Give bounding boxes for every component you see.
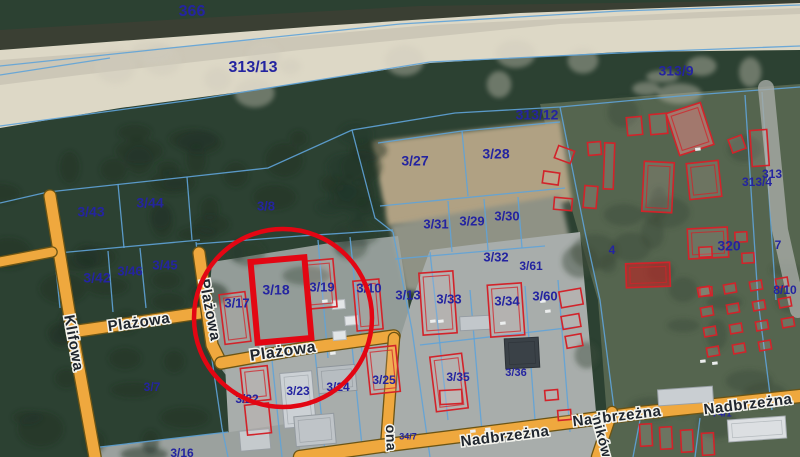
building-outline-red xyxy=(680,430,693,453)
car xyxy=(500,321,506,325)
building-outline-red xyxy=(752,300,765,311)
building-outline-red xyxy=(559,288,583,308)
car xyxy=(322,299,328,303)
building-outline-red xyxy=(755,320,768,331)
building-outline-red xyxy=(642,161,675,213)
texture-blob xyxy=(18,411,63,446)
texture-blob xyxy=(496,40,536,68)
building-roof xyxy=(460,315,491,331)
texture-blob xyxy=(290,131,307,146)
building-outline-red xyxy=(723,283,736,294)
parcel-label: 3/8 xyxy=(257,198,275,213)
texture-blob xyxy=(385,45,424,76)
parcel-label: 320 xyxy=(717,238,741,254)
texture-blob xyxy=(739,57,761,87)
parcel-label: 3/60 xyxy=(532,288,557,303)
building-outline-red xyxy=(649,113,668,134)
building-outline-red xyxy=(686,160,722,199)
parcel-label: 3/34 xyxy=(494,293,520,308)
texture-blob xyxy=(204,68,231,92)
parcel-label: 3/42 xyxy=(83,270,110,286)
building-outline-red xyxy=(440,389,463,404)
car xyxy=(695,147,701,151)
building-outline-red xyxy=(778,297,791,308)
parcel-label: 3/44 xyxy=(136,195,163,211)
building-outline-red xyxy=(561,314,581,330)
parcel-label: 3/43 xyxy=(77,204,104,220)
texture-blob xyxy=(487,71,512,98)
building-outline-red xyxy=(732,343,745,354)
parcel-label: 3/16 xyxy=(170,446,194,457)
texture-blob xyxy=(101,159,127,182)
parcel-label: 313/12 xyxy=(516,107,559,123)
building-outline-red xyxy=(781,317,794,328)
building-outline-red xyxy=(542,171,560,185)
texture-blob xyxy=(657,83,701,104)
building-outline-red xyxy=(487,283,525,337)
building-outline-red xyxy=(545,389,559,400)
parcel-label: 3/28 xyxy=(482,146,509,162)
parcel-label: 3/30 xyxy=(494,208,519,223)
texture-blob xyxy=(152,293,184,310)
parcel-label: 7 xyxy=(775,238,782,252)
texture-blob xyxy=(632,82,660,96)
parcel-label: 4 xyxy=(609,243,616,257)
building-outline-red xyxy=(639,424,652,447)
parcel-label: 3/45 xyxy=(152,257,177,272)
texture-blob xyxy=(604,204,644,226)
texture-blob xyxy=(125,146,152,173)
parcel-label: 3/13 xyxy=(395,287,420,302)
car xyxy=(712,361,718,365)
parcel-label: 3/17 xyxy=(224,295,249,310)
parcel-label: 3/61 xyxy=(519,259,543,273)
building-outline-red xyxy=(583,185,598,208)
texture-blob xyxy=(161,407,209,427)
map-render-layer: 366313/13313/9313/123/273/283/83/433/443… xyxy=(0,0,800,457)
texture-blob xyxy=(60,152,79,183)
car xyxy=(545,309,551,313)
building-outline-red xyxy=(700,306,713,317)
texture-blob xyxy=(667,319,699,332)
building-outline-red xyxy=(706,346,719,357)
parcel-label: 3/18 xyxy=(262,282,289,298)
texture-blob xyxy=(201,198,219,222)
parcel-label: 3/25 xyxy=(372,373,396,387)
texture-blob xyxy=(153,272,180,289)
car xyxy=(700,359,706,363)
building-outline-red xyxy=(697,286,710,297)
building-outline-red xyxy=(750,129,769,166)
parcel-label: 8/10 xyxy=(773,283,797,297)
parcel-label: 3/46 xyxy=(117,263,142,278)
parcel-label: 366 xyxy=(179,3,206,20)
building-outline-red xyxy=(701,433,714,456)
building-outline-red xyxy=(626,262,671,288)
car xyxy=(438,319,444,323)
texture-blob xyxy=(164,351,184,373)
building-outline-red xyxy=(603,143,615,189)
parcel-label: 34/7 xyxy=(399,431,417,441)
building-outline-red xyxy=(758,340,771,351)
texture-blob xyxy=(169,129,216,149)
parcel-line xyxy=(58,240,200,253)
parcel-label: 3/23 xyxy=(286,384,310,398)
texture-blob xyxy=(568,48,599,74)
parcel-label: 3/7 xyxy=(144,380,161,394)
building-roof xyxy=(333,330,347,340)
car xyxy=(330,351,336,355)
parcel-label: 3/29 xyxy=(459,213,484,228)
texture-blob xyxy=(224,163,248,187)
building-outline-red xyxy=(554,197,573,211)
parcel-label: 3/36 xyxy=(505,367,526,379)
building-outline-red xyxy=(742,253,755,264)
parcel-label: 3/19 xyxy=(309,279,334,294)
building-outline-red xyxy=(659,427,672,450)
car xyxy=(430,319,436,323)
parcel-label: 3/27 xyxy=(401,153,428,169)
parcel-label: 3/33 xyxy=(436,291,461,306)
street-label: Plażowa xyxy=(107,310,172,336)
building-outline-red xyxy=(749,280,762,291)
parcel-label: 313 xyxy=(762,167,782,181)
building-outline-red xyxy=(699,247,713,258)
parcel-label: 313/13 xyxy=(229,59,278,76)
building-outline-red xyxy=(729,323,742,334)
parcel-label: 313/9 xyxy=(658,63,693,79)
parcel-label: 3/32 xyxy=(483,249,508,264)
texture-blob xyxy=(612,232,651,261)
building-roof xyxy=(504,337,540,369)
building-outline-red xyxy=(565,334,583,349)
building-outline-red xyxy=(726,303,739,314)
texture-blob xyxy=(316,199,344,214)
building-roof xyxy=(294,413,336,446)
cadastral-map-canvas[interactable]: 366313/13313/9313/123/273/283/83/433/443… xyxy=(0,0,800,457)
texture-blob xyxy=(118,125,151,141)
building-outline-red xyxy=(558,409,572,420)
texture-blob xyxy=(669,277,698,302)
texture-blob xyxy=(109,348,141,369)
building-outline-red xyxy=(703,326,716,337)
building-outline-red xyxy=(626,116,643,135)
parcel-label: 3/35 xyxy=(446,370,470,384)
street-label: ona xyxy=(383,424,400,451)
texture-blob xyxy=(280,59,301,74)
texture-blob xyxy=(726,370,773,392)
parcel-line xyxy=(118,184,124,248)
building-outline-red xyxy=(587,141,601,155)
parcel-label: 3/31 xyxy=(423,216,448,231)
building-roof xyxy=(727,416,786,442)
